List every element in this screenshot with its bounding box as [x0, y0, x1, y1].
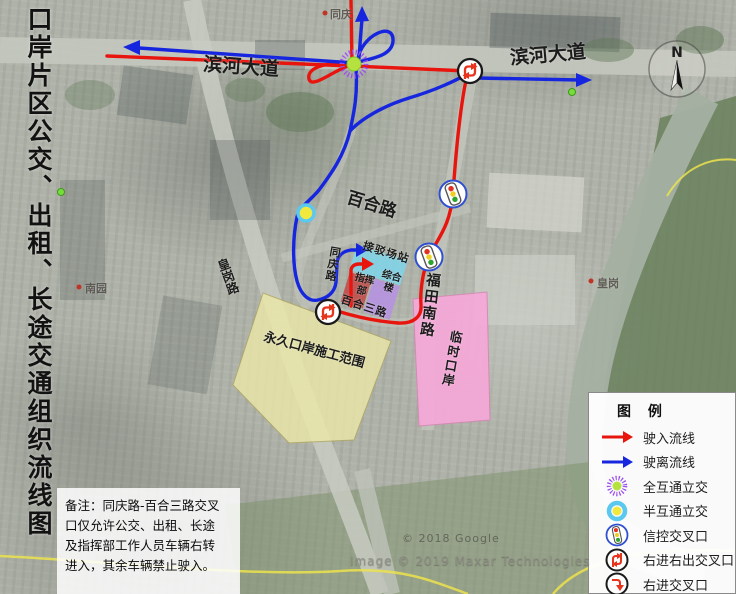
place-dot — [323, 11, 328, 16]
note-line: 备注：同庆路-百合三路交叉 — [65, 496, 232, 516]
legend-label: 全互通立交 — [643, 477, 708, 496]
half-interchange-core — [298, 205, 314, 221]
place-label-huanggang: 皇岗 — [597, 275, 619, 291]
inbound-arrow-icon — [599, 430, 635, 444]
outbound-arrowhead-west — [123, 40, 140, 55]
legend-title: 图 例 — [617, 401, 735, 421]
maxar-watermark: Image © 2019 Maxar Technologies — [350, 554, 591, 568]
outbound-arrow-icon — [599, 455, 635, 469]
map-pin — [569, 89, 576, 96]
legend-item-signal: 信控交叉口 — [599, 523, 735, 548]
place-label-nanyuan: 南园 — [85, 280, 107, 296]
note-line: 口仅允许公交、出租、长途 — [65, 516, 232, 536]
outbound-arrowhead-east — [576, 73, 592, 87]
page-title: 口岸片区公交、出租、长途交通组织流线图 — [26, 6, 51, 538]
legend-item-right-in: 右进交叉口 — [599, 572, 735, 594]
legend-item-inbound: 驶入流线 — [599, 425, 735, 450]
note-line: 及指挥部工作人员车辆右转 — [65, 536, 232, 556]
note-line: 进入，其余车辆禁止驶入。 — [65, 556, 232, 576]
right-in-icon — [599, 572, 635, 594]
legend-label: 驶离流线 — [643, 452, 695, 471]
signal-intersection-icon — [599, 523, 635, 547]
half-interchange-icon — [298, 205, 314, 221]
note-box: 备注：同庆路-百合三路交叉 口仅允许公交、出租、长途 及指挥部工作人员车辆右转 … — [57, 488, 240, 594]
place-label-tongqing: 同庆 — [330, 6, 352, 22]
place-dot — [77, 285, 82, 290]
outbound-flow-east — [477, 78, 580, 80]
legend-label: 驶入流线 — [643, 428, 695, 447]
legend-label: 半互通立交 — [643, 501, 708, 520]
outbound-loop — [358, 31, 393, 62]
compass-north-label: N — [671, 45, 683, 61]
riro-ring — [458, 59, 482, 83]
outbound-arrowhead-north — [355, 6, 369, 22]
google-watermark: © 2018 Google — [402, 532, 500, 545]
right-in-right-out-icon — [458, 59, 482, 83]
yellow-road-line — [667, 159, 736, 196]
legend-label: 右进交叉口 — [643, 575, 708, 594]
signal-intersection-icon — [440, 181, 467, 208]
legend-item-outbound: 驶离流线 — [599, 450, 735, 475]
legend: 图 例 驶入流线 驶离流线 全互通立交 半互通立交 — [588, 392, 736, 594]
traffic-plan-map: 口岸片区公交、出租、长途交通组织流线图 滨河大道 滨河大道 百合路 福田南路 同… — [0, 0, 736, 594]
half-interchange-icon — [599, 499, 635, 523]
interchange-core — [347, 57, 361, 71]
riro-ring — [316, 300, 340, 324]
full-interchange-icon — [599, 474, 635, 498]
permanent-port-zone — [233, 293, 391, 443]
place-dot — [589, 279, 594, 284]
outbound-flow-branch — [350, 74, 467, 131]
right-in-right-out-icon — [316, 300, 340, 324]
legend-item-full-interchange: 全互通立交 — [599, 474, 735, 499]
signal-intersection-icon — [416, 244, 443, 271]
legend-item-right-in-right-out: 右进右出交叉口 — [599, 548, 735, 573]
north-compass: N — [646, 38, 708, 100]
legend-item-half-interchange: 半互通立交 — [599, 499, 735, 524]
legend-label: 信控交叉口 — [643, 526, 708, 545]
map-pin — [58, 189, 65, 196]
right-in-right-out-icon — [599, 548, 635, 572]
legend-label: 右进右出交叉口 — [643, 550, 734, 569]
